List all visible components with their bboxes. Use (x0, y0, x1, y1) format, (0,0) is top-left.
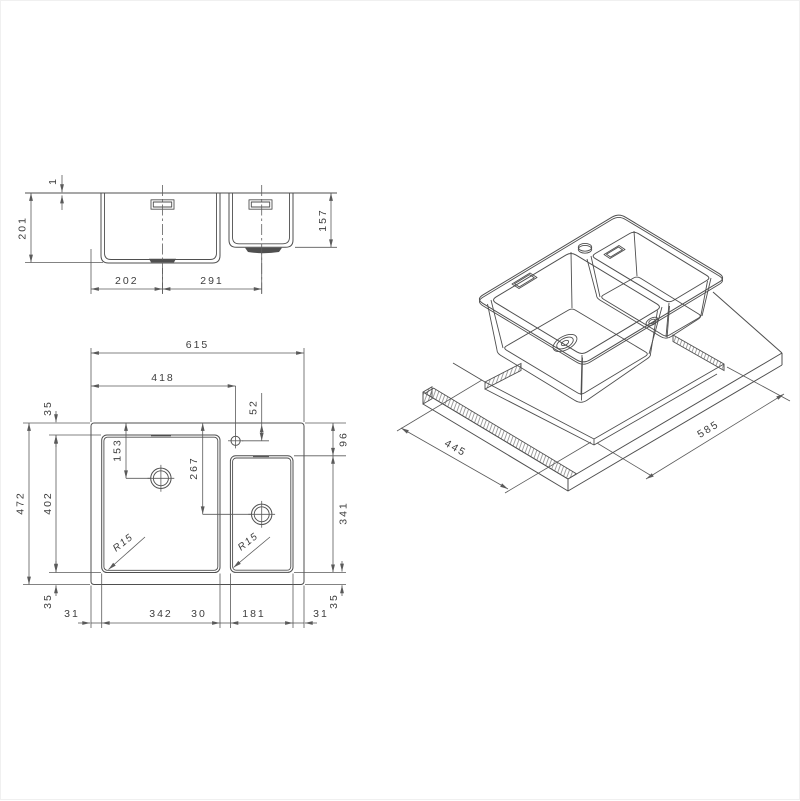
small-bowl-overflow-inner (251, 202, 269, 207)
radius2-label: R15 (236, 531, 261, 554)
radius1-label: R15 (111, 532, 136, 555)
tap-hole-iso-bottom (578, 245, 591, 253)
dim-bowl2-width-label: 181 (242, 608, 266, 620)
dim-bowl2-bottom-inset-label: 35 (328, 593, 340, 609)
dim-bowl1-center-label: 202 (115, 275, 139, 287)
small-bowl-overflow-outer (249, 200, 272, 209)
drawing-sheet: 1 201 157 202 291 (0, 0, 800, 800)
sink-body-iso (479, 215, 722, 402)
dim-overall-width-label: 615 (186, 339, 210, 351)
ext-cutout-back-left (397, 380, 482, 431)
dim-overall-depth-label: 472 (15, 491, 27, 515)
small-bowl-drain-flange (245, 248, 282, 253)
dim-cutout-depth-line (401, 428, 508, 489)
dim-cutout-width-line (646, 394, 784, 479)
dim-bowl1-length-label: 402 (42, 491, 54, 515)
dim-bowl1-depth-label: 201 (17, 216, 29, 240)
sink-technical-drawing: 1 201 157 202 291 (1, 1, 800, 801)
dim-drain1-label: 153 (112, 438, 124, 462)
dim-left-inset-label: 31 (64, 608, 80, 620)
dim-bowl2-length-label: 341 (338, 501, 350, 525)
dim-cutout-depth-label: 445 (442, 437, 468, 459)
rim-plate-outline (479, 215, 722, 362)
dim-bowl1-bottom-inset-label: 35 (42, 593, 54, 609)
small-bowl-inner (233, 193, 290, 244)
tap-hole (228, 433, 243, 448)
countertop-slab (423, 292, 782, 491)
iso-dimensions: 445 585 (397, 367, 790, 493)
dim-gap-label: 30 (191, 608, 207, 620)
dim-bowl1-width-label: 342 (149, 608, 173, 620)
dim-tap-x-label: 418 (151, 372, 175, 384)
dim-bowl1-top-inset-label: 35 (42, 400, 54, 416)
large-bowl-iso (488, 252, 663, 402)
large-bowl-outer (101, 193, 220, 263)
small-bowl-iso (587, 231, 711, 339)
dim-center-distance-label: 291 (200, 275, 224, 287)
dim-tap-y-label: 52 (248, 399, 260, 415)
small-overflow-iso-outer (604, 246, 625, 259)
small-bowl-outer (229, 193, 293, 247)
dim-bowl2-top-inset-label: 96 (338, 431, 350, 447)
cutout-back-edge-tail (453, 363, 485, 382)
slab-front-cut-band (425, 388, 577, 479)
dim-right-inset-label: 31 (313, 608, 329, 620)
large-bowl-inner (105, 193, 217, 260)
dim-cutout-width-label: 585 (695, 418, 721, 441)
front-elevation-view: 1 201 157 202 291 (17, 175, 338, 296)
plan-view: 615 418 52 35 472 402 35 153 (15, 339, 350, 628)
large-bowl-outer-walls (488, 304, 658, 402)
tap-hole-iso-top (578, 243, 591, 251)
dim-rim-thickness-label: 1 (47, 177, 59, 185)
dim-drain2-label: 267 (188, 456, 200, 480)
cutout-right-cut-band (673, 335, 724, 371)
slab-back-edge (713, 292, 782, 353)
large-drain-iso-hole (560, 339, 569, 346)
small-bowl-outer-walls (587, 259, 708, 339)
isometric-view: 445 585 (397, 215, 790, 493)
small-bowl-profile (229, 185, 293, 296)
dim-bowl2-depth-label: 157 (317, 208, 329, 232)
